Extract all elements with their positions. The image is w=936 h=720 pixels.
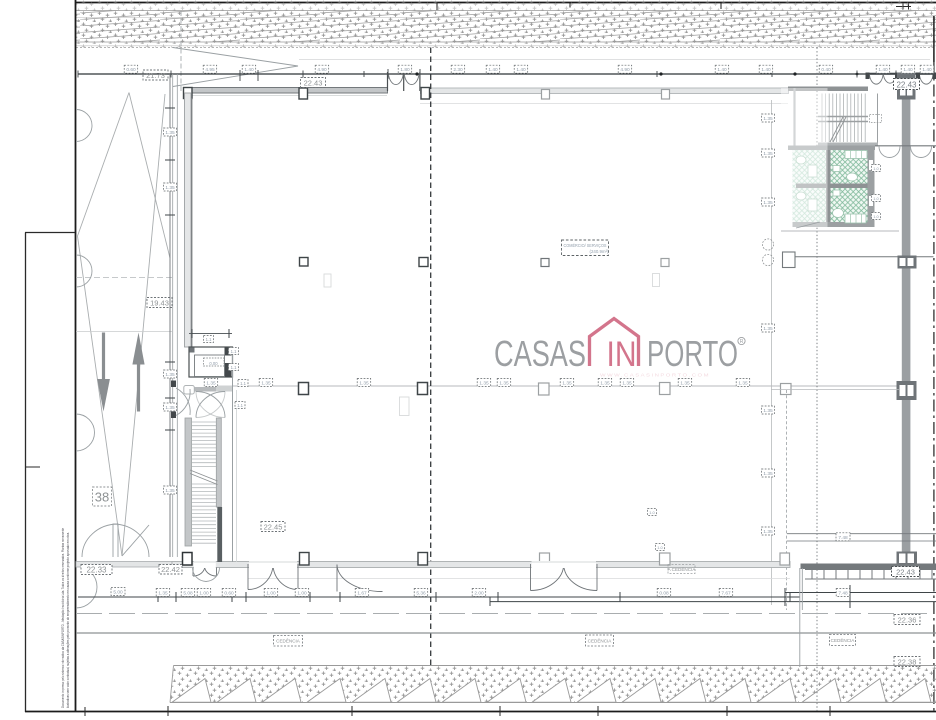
- svg-text:22.42: 22.42: [161, 565, 180, 574]
- svg-text:IN: IN: [607, 334, 637, 374]
- svg-text:1.40: 1.40: [922, 67, 932, 73]
- svg-text:1.40: 1.40: [903, 67, 913, 73]
- svg-text:CEDÊNCIA: CEDÊNCIA: [588, 637, 613, 644]
- svg-text:1.35: 1.35: [261, 380, 271, 386]
- svg-text:CEDÊNCIA: CEDÊNCIA: [276, 637, 301, 644]
- svg-text:1.35: 1.35: [763, 200, 773, 206]
- svg-text:22.43: 22.43: [896, 568, 915, 577]
- svg-text:1.00: 1.00: [266, 590, 276, 596]
- svg-text:A CEDÊNCIA: A CEDÊNCIA: [668, 565, 697, 572]
- svg-text:38: 38: [95, 490, 109, 505]
- svg-text:1.35: 1.35: [165, 405, 175, 411]
- svg-text:1.1: 1.1: [237, 403, 243, 408]
- svg-text:1.35: 1.35: [763, 471, 773, 477]
- svg-text:1.35: 1.35: [763, 151, 773, 157]
- svg-text:1.80: 1.80: [400, 67, 410, 73]
- svg-text:1.0: 1.0: [873, 196, 879, 201]
- svg-text:ilustrativas sem valor contrat: ilustrativas sem valor contratual, sujei…: [66, 532, 70, 708]
- svg-text:1.00: 1.00: [297, 590, 307, 596]
- svg-text:1.0: 1.0: [657, 545, 663, 550]
- svg-text:1.0: 1.0: [873, 214, 879, 219]
- svg-text:5.36: 5.36: [416, 590, 426, 596]
- svg-text:4.95: 4.95: [205, 67, 215, 73]
- svg-text:1.35: 1.35: [165, 130, 175, 136]
- svg-text:1.35: 1.35: [165, 372, 175, 378]
- svg-text:1.40: 1.40: [488, 67, 498, 73]
- svg-text:1.0: 1.0: [649, 510, 655, 515]
- svg-text:5.00: 5.00: [113, 590, 123, 596]
- svg-text:7.67: 7.67: [721, 590, 731, 596]
- svg-text:1.1: 1.1: [231, 365, 237, 370]
- svg-text:1.67: 1.67: [357, 590, 367, 596]
- svg-text:1.0: 1.0: [873, 166, 879, 171]
- svg-text:Documento impresso pelo sistem: Documento impresso pelo sistema informát…: [61, 528, 65, 708]
- svg-text:22.33: 22.33: [86, 566, 107, 575]
- svg-text:0.00: 0.00: [209, 361, 218, 366]
- svg-text:22.45: 22.45: [264, 523, 283, 532]
- svg-text:1.40: 1.40: [516, 67, 526, 73]
- svg-text:1.35: 1.35: [479, 380, 489, 386]
- svg-text:1.35: 1.35: [763, 408, 773, 414]
- svg-text:COMÉRCIO/ SERVIÇOS: COMÉRCIO/ SERVIÇOS: [564, 243, 607, 248]
- svg-text:7.48: 7.48: [838, 590, 848, 596]
- svg-text:1.35: 1.35: [680, 380, 690, 386]
- svg-text:1.35: 1.35: [562, 380, 572, 386]
- svg-text:1.35: 1.35: [763, 326, 773, 332]
- svg-text:1.35: 1.35: [622, 380, 632, 386]
- svg-text:1.40: 1.40: [717, 67, 727, 73]
- svg-text:1.40: 1.40: [244, 67, 254, 73]
- svg-text:1.1: 1.1: [231, 349, 237, 354]
- svg-text:1.35: 1.35: [158, 590, 168, 596]
- svg-text:1.1: 1.1: [240, 381, 246, 386]
- svg-text:0.60: 0.60: [126, 67, 136, 73]
- svg-text:1.35: 1.35: [600, 380, 610, 386]
- svg-text:1.40: 1.40: [878, 67, 888, 73]
- svg-text:1.1: 1.1: [206, 337, 212, 342]
- svg-text:1.35: 1.35: [738, 380, 748, 386]
- svg-text:21.73: 21.73: [146, 71, 165, 80]
- svg-text:1.40: 1.40: [761, 67, 771, 73]
- svg-text:1.35: 1.35: [359, 380, 369, 386]
- svg-text:1.00: 1.00: [199, 590, 209, 596]
- svg-text:1.35: 1.35: [165, 185, 175, 191]
- svg-text:22.36: 22.36: [898, 616, 917, 625]
- svg-text:2.00: 2.00: [474, 590, 484, 596]
- svg-text:1.35: 1.35: [206, 380, 216, 386]
- svg-text:CASAS: CASAS: [494, 333, 586, 374]
- svg-text:19.43: 19.43: [150, 299, 169, 308]
- svg-text:1.35: 1.35: [763, 529, 773, 535]
- svg-text:WWW.CASASINPORTO.COM: WWW.CASASINPORTO.COM: [600, 373, 710, 378]
- svg-text:R: R: [740, 339, 744, 345]
- svg-text:0.60: 0.60: [224, 590, 234, 596]
- svg-text:1.35: 1.35: [499, 380, 509, 386]
- svg-text:4.90: 4.90: [317, 67, 327, 73]
- svg-text:1.35: 1.35: [165, 488, 175, 494]
- svg-text:PORTO: PORTO: [647, 333, 738, 374]
- svg-text:(240.9m²): (240.9m²): [589, 249, 609, 254]
- svg-text:0.40: 0.40: [821, 67, 831, 73]
- svg-text:5.08: 5.08: [183, 590, 193, 596]
- svg-text:2.30: 2.30: [453, 67, 463, 73]
- svg-text:22.43: 22.43: [304, 79, 323, 88]
- svg-text:22.38: 22.38: [898, 658, 917, 667]
- svg-text:22.43: 22.43: [896, 81, 917, 90]
- svg-text:CEDÊNCIA: CEDÊNCIA: [831, 636, 856, 643]
- svg-text:1.35: 1.35: [763, 116, 773, 122]
- svg-text:7.48: 7.48: [838, 535, 848, 541]
- svg-text:0.08: 0.08: [659, 590, 669, 596]
- svg-text:4.90: 4.90: [620, 67, 630, 73]
